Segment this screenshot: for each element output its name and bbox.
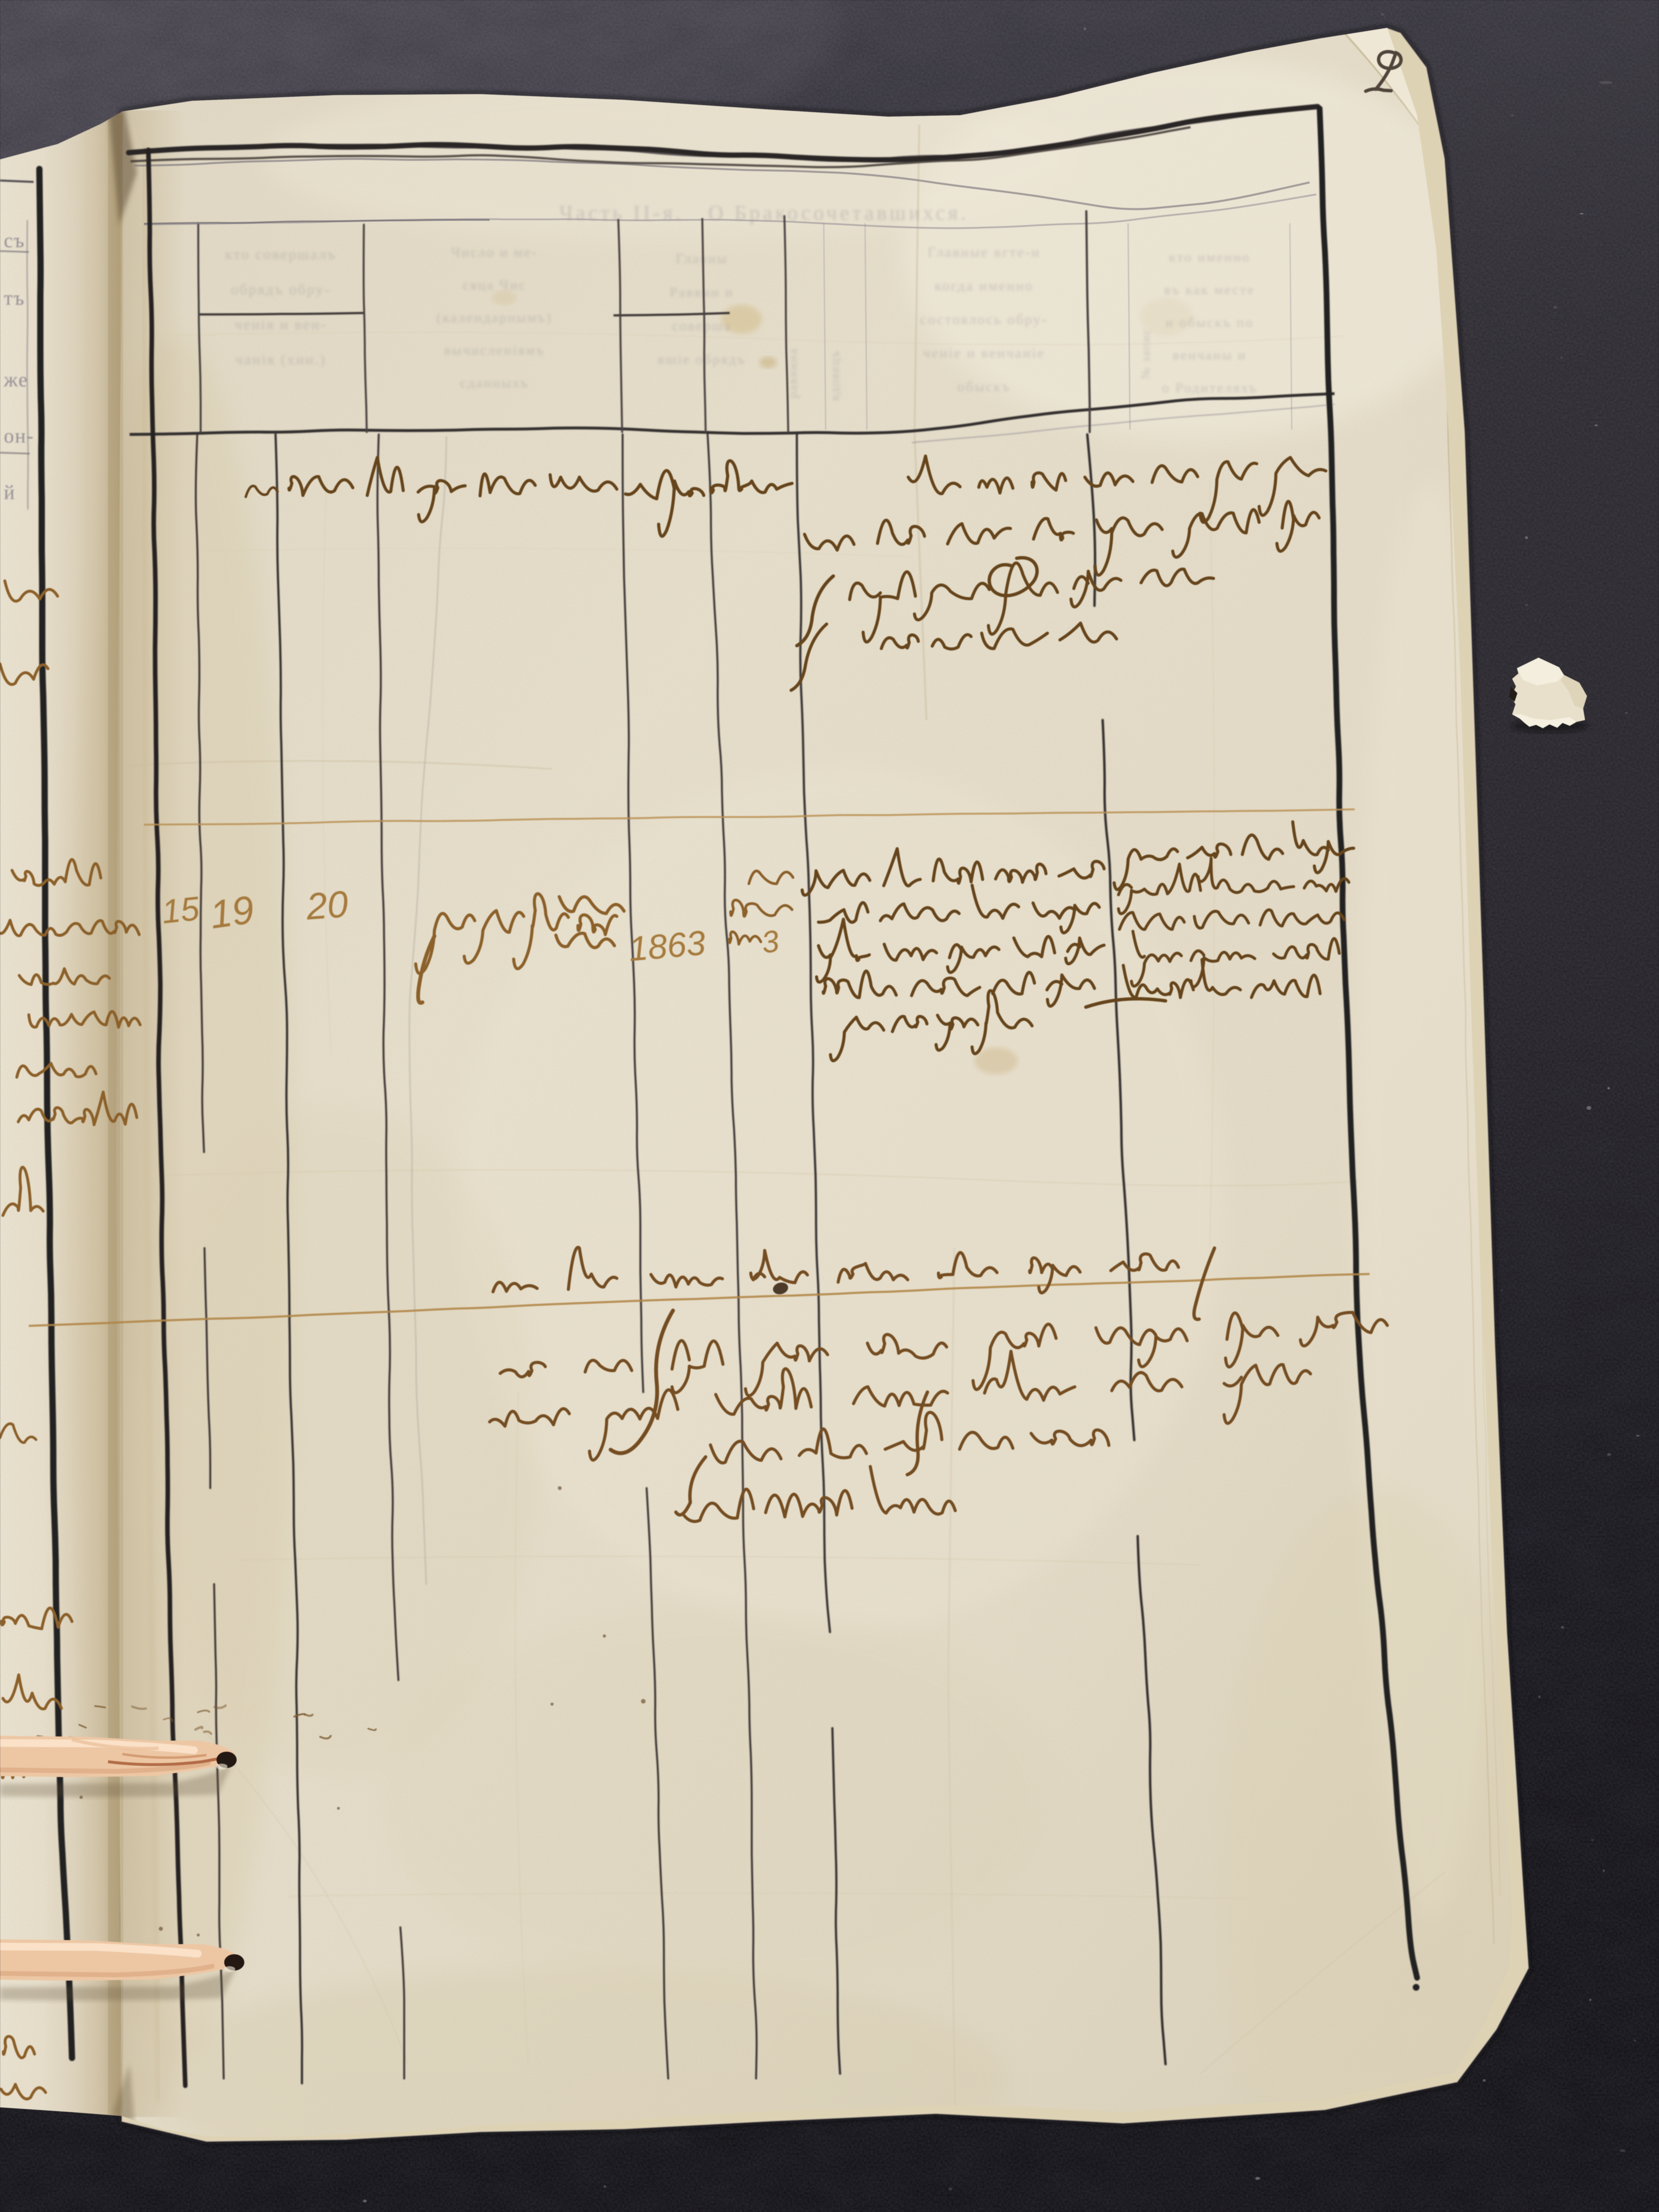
svg-text:обыскъ: обыскъ: [957, 379, 1011, 395]
svg-text:вшіе обрядъ: вшіе обрядъ: [658, 352, 746, 367]
svg-text:съ: съ: [4, 230, 25, 252]
svg-text:ченіе и венчаніе: ченіе и венчаніе: [923, 345, 1046, 361]
svg-text:тъ: тъ: [4, 288, 25, 310]
svg-text:он-: он-: [4, 425, 34, 447]
svg-text:когда именно: когда именно: [935, 278, 1034, 294]
svg-text:(календарнымъ): (календарнымъ): [436, 310, 552, 325]
svg-text:19: 19: [207, 888, 257, 937]
svg-text:о Родителяхъ: о Родителяхъ: [1162, 380, 1258, 396]
svg-text:Раввин и: Раввин и: [670, 285, 734, 300]
svg-text:сданныхъ: сданныхъ: [460, 375, 529, 391]
svg-text:венчаны и: венчаны и: [1173, 348, 1247, 363]
svg-text:чанія (хии.): чанія (хии.): [235, 351, 326, 368]
svg-text:состоялось обру-: состоялось обру-: [920, 312, 1048, 327]
svg-text:Главные вгте-и: Главные вгте-и: [927, 244, 1041, 260]
svg-text:сяца Чис: сяца Чис: [462, 277, 526, 293]
svg-text:Главны: Главны: [676, 251, 728, 266]
svg-text:1863: 1863: [627, 924, 707, 969]
svg-text:кто именно: кто именно: [1169, 250, 1250, 265]
svg-text:№ запис: № запис: [1139, 328, 1153, 379]
svg-text:вычисленіямъ: вычисленіямъ: [444, 343, 545, 358]
svg-text:и обыскъ по: и обыскъ по: [1166, 315, 1254, 330]
svg-text:въ как месте: въ как месте: [1164, 282, 1255, 298]
svg-text:же: же: [3, 369, 28, 391]
svg-text:ченія и вен-: ченія и вен-: [235, 316, 327, 333]
svg-text:соверша: соверша: [672, 318, 732, 334]
svg-text:обрядъ обру-: обрядъ обру-: [231, 281, 331, 298]
svg-text:Число и ме-: Число и ме-: [451, 245, 538, 260]
svg-text:15: 15: [160, 890, 202, 931]
svg-text:20: 20: [304, 883, 349, 928]
svg-text:кто совершалъ: кто совершалъ: [225, 246, 337, 263]
svg-text:вдовецъ: вдовецъ: [828, 350, 842, 401]
svg-text:й: й: [4, 482, 15, 504]
